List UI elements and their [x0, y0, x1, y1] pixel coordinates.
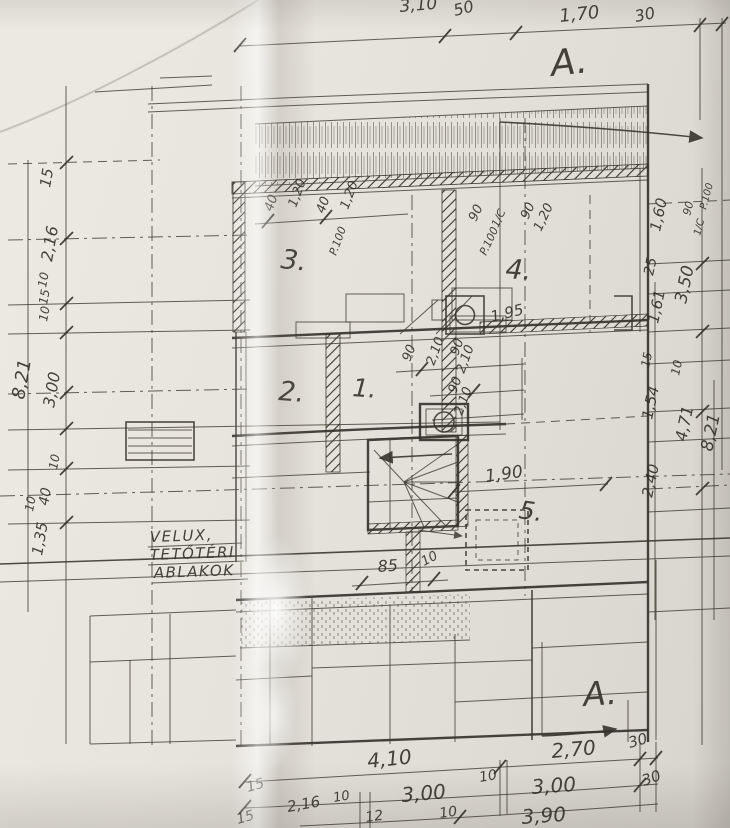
dim-left-8: 10	[46, 453, 63, 471]
ann-w4b: 1/C	[489, 207, 509, 229]
ann-85: 85	[377, 556, 399, 576]
top-shadow	[0, 0, 730, 30]
dim-left-6: 3,00	[39, 370, 64, 408]
right-shadow	[692, 0, 730, 828]
section-marker-bottom: A.	[542, 642, 628, 742]
paper-glare-2	[252, 660, 296, 770]
section-label-bottom: A.	[580, 673, 618, 714]
dim-bottom-2: 30	[626, 729, 649, 752]
floor-plan-photo: 3,10 50 1,70 30 A.	[0, 0, 730, 828]
ann-w4a: 90	[466, 202, 487, 223]
dim-left-2: 2,16	[37, 224, 62, 262]
door-dimension-chains: 90 2,10 90 2,10 90 2,10	[396, 335, 524, 420]
room-label-1: 1.	[352, 373, 378, 404]
wall-below-stair	[406, 532, 420, 592]
room-label-2: 2.	[278, 376, 306, 409]
dim-left-10: 10	[22, 495, 39, 513]
bottom-shadow	[0, 764, 730, 828]
long-floor-lines	[0, 538, 730, 582]
axis-lines	[0, 118, 730, 596]
dim-left-7: 8,21	[8, 358, 36, 401]
wall-room4-left	[442, 190, 456, 432]
wall-room1-left	[326, 334, 340, 472]
note-line-1: VELUX,	[150, 526, 214, 546]
dim-left-11: 1,35	[28, 521, 52, 557]
room-label-5: 5.	[517, 495, 545, 527]
room-label-4: 4.	[505, 254, 533, 287]
dim-right-6: 10	[668, 358, 685, 376]
section-label-top: A.	[547, 40, 590, 85]
plan-drawing: 3,10 50 1,70 30 A.	[0, 0, 730, 828]
dim-right-10: 2,40	[638, 462, 663, 498]
dim-left-5: 10	[36, 305, 53, 323]
dim-left-4: 15	[36, 288, 52, 305]
dim-right-1: 1,60	[646, 196, 671, 232]
ann-dA1: 90	[400, 343, 420, 364]
dim-left-9: 40	[36, 486, 55, 506]
dim-bottom-1: 2,70	[550, 735, 596, 763]
dim-right-2: 25	[641, 256, 660, 277]
dim-left-3: 10	[35, 271, 52, 289]
lower-building	[90, 582, 648, 746]
dim-right-5: 15	[638, 351, 655, 369]
ann-w4p: P.100	[477, 225, 501, 257]
ann-190: 1,90	[484, 462, 524, 487]
dim-left-1: 15	[36, 167, 57, 189]
dim-right-7: 1,54	[638, 384, 663, 420]
ann-w3p: P.100	[327, 225, 349, 257]
room-label-3: 3.	[279, 244, 308, 278]
